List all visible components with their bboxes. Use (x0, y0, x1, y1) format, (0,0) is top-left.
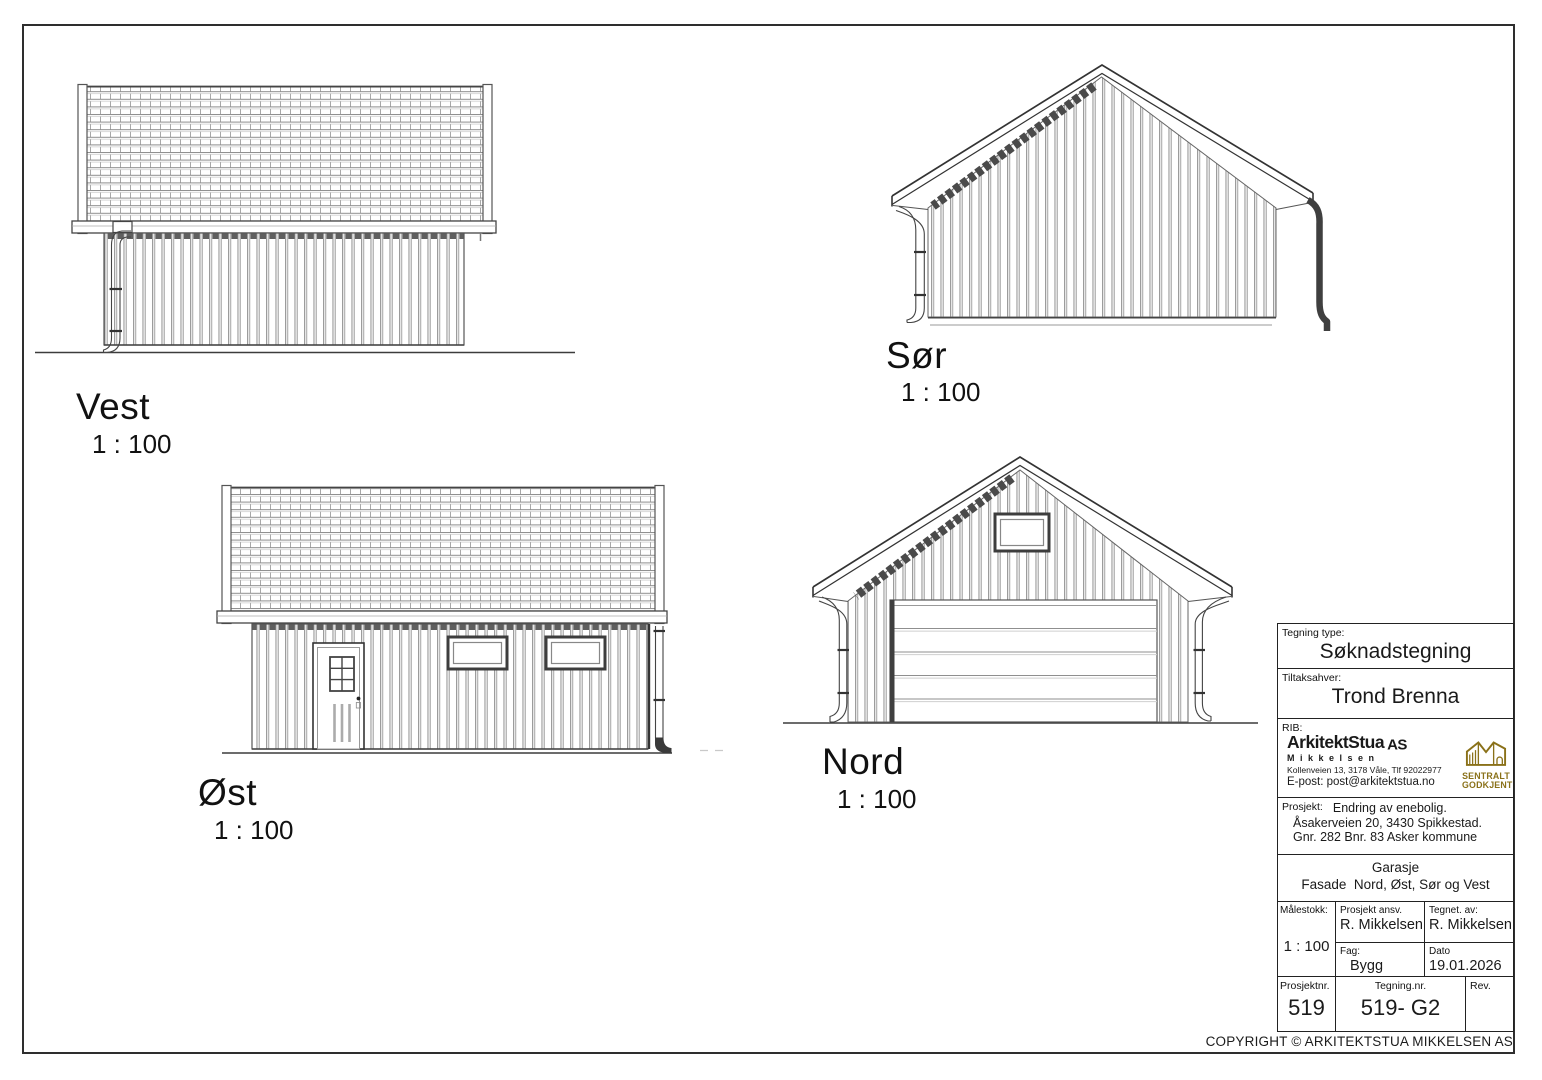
ost-label: Øst (198, 772, 257, 814)
prosjektnr-value: 519 (1278, 995, 1335, 1021)
nord-scale: 1 : 100 (837, 784, 917, 815)
firm-logo: ArkitektStuaAS Mikkelsen Kollenveien 13,… (1287, 733, 1437, 789)
numbers-row: Prosjektnr. 519 Tegning.nr. 519- G2 Rev. (1278, 977, 1513, 1031)
title-block: Tegning type: Søknadstegning Tiltaksahve… (1277, 623, 1514, 1032)
malestokk-label: Målestokk: (1278, 902, 1335, 916)
prosjektnr-cell: Prosjektnr. 519 (1278, 977, 1336, 1031)
tegnet-av-value: R. Mikkelsen (1425, 917, 1513, 933)
nord-garage-door (890, 600, 1157, 722)
ost-scale: 1 : 100 (214, 815, 294, 846)
firm-email: E-post: post@arkitektstua.no (1287, 776, 1437, 789)
prosjekt-line-2: Åsakerveien 20, 3430 Spikkestad. (1278, 816, 1513, 831)
prosjekt-ansv-value: R. Mikkelsen (1336, 917, 1424, 933)
tiltakshaver-value: Trond Brenna (1278, 685, 1513, 709)
tegningnr-value: 519- G2 (1336, 995, 1465, 1021)
tiltakshaver-row: Tiltaksahver: Trond Brenna (1278, 669, 1513, 719)
nord-downspout-right (1194, 597, 1230, 721)
tegnet-av-label: Tegnet. av: (1425, 902, 1513, 916)
rev-label: Rev. (1466, 977, 1513, 992)
nord-elevation-drawing (783, 457, 1258, 723)
fag-value: Bygg (1336, 958, 1424, 974)
tegning-type-value: Søknadstegning (1278, 640, 1513, 664)
sor-downspout-left (896, 207, 926, 323)
sentralt-godkjent-badge: SENTRALT GODKJENT (1462, 740, 1510, 791)
sor-scale: 1 : 100 (901, 377, 981, 408)
tegning-type-label: Tegning type: (1278, 624, 1513, 639)
malestokk-cell: Målestokk: 1 : 100 (1278, 902, 1336, 977)
prosjekt-label: Prosjekt: (1282, 798, 1329, 816)
vest-scale: 1 : 100 (92, 429, 172, 460)
dato-value: 19.01.2026 (1425, 958, 1513, 974)
prosjektnr-label: Prosjektnr. (1278, 977, 1335, 992)
sor-label: Sør (886, 335, 947, 377)
copyright-text: COPYRIGHT © ARKITEKTSTUA MIKKELSEN AS (1206, 1034, 1513, 1049)
malestokk-value: 1 : 100 (1278, 938, 1335, 955)
nord-downspout-left (819, 597, 849, 722)
tegningnr-label: Tegning.nr. (1336, 977, 1465, 992)
firm-suffix: AS (1387, 736, 1407, 754)
prosjekt-line-1: Endring av enebolig. (1329, 798, 1447, 816)
firm-name: ArkitektStuaAS (1287, 733, 1437, 753)
sentralt-godkjent-icon (1465, 740, 1507, 767)
ost-window-2 (546, 637, 605, 669)
vest-label: Vest (76, 386, 150, 428)
nord-gable-window (995, 514, 1049, 551)
prosjekt-ansv-label: Prosjekt ansv. (1336, 902, 1424, 916)
dato-cell: Dato 19.01.2026 (1425, 943, 1513, 977)
prosjekt-ansv-cell: Prosjekt ansv. R. Mikkelsen (1336, 902, 1425, 942)
prosjekt-row: Prosjekt: Endring av enebolig. Åsakervei… (1278, 798, 1513, 855)
door-handle (357, 697, 361, 701)
prosjekt-line-3: Gnr. 282 Bnr. 83 Asker kommune (1278, 830, 1513, 845)
drawing-title-line2: Fasade Nord, Øst, Sør og Vest (1278, 876, 1513, 893)
vest-elevation-drawing (35, 85, 575, 353)
drawing-title-row: Garasje Fasade Nord, Øst, Sør og Vest (1278, 855, 1513, 902)
ost-window-1 (448, 637, 507, 669)
drawing-sheet: Vest 1 : 100 Sør 1 : 100 Øst 1 : 100 Nor… (0, 0, 1542, 1080)
ost-elevation-drawing (217, 486, 726, 754)
fag-cell: Fag: Bygg (1336, 943, 1425, 977)
badge-line2: GODKJENT (1462, 781, 1510, 791)
rib-row: RIB: ArkitektStuaAS Mikkelsen Kollenveie… (1278, 719, 1513, 799)
tiltakshaver-label: Tiltaksahver: (1278, 669, 1513, 684)
firm-address: Kollenveien 13, 3178 Våle, Tlf 92022977 (1287, 765, 1437, 776)
ost-downspout (654, 626, 672, 753)
fag-label: Fag: (1336, 943, 1424, 957)
dato-label: Dato (1425, 943, 1513, 957)
sor-elevation-drawing (892, 65, 1327, 331)
drawing-title-line1: Garasje (1278, 860, 1513, 876)
scale-author-row: Målestokk: 1 : 100 Prosjekt ansv. R. Mik… (1278, 902, 1513, 978)
sor-downspout-right (1308, 200, 1327, 331)
ost-door (313, 643, 364, 749)
tegning-type-row: Tegning type: Søknadstegning (1278, 624, 1513, 669)
tegningnr-cell: Tegning.nr. 519- G2 (1336, 977, 1466, 1031)
tegnet-av-cell: Tegnet. av: R. Mikkelsen (1425, 902, 1513, 942)
firm-subname: Mikkelsen (1287, 753, 1437, 763)
nord-label: Nord (822, 741, 904, 783)
rev-cell: Rev. (1466, 977, 1513, 1031)
